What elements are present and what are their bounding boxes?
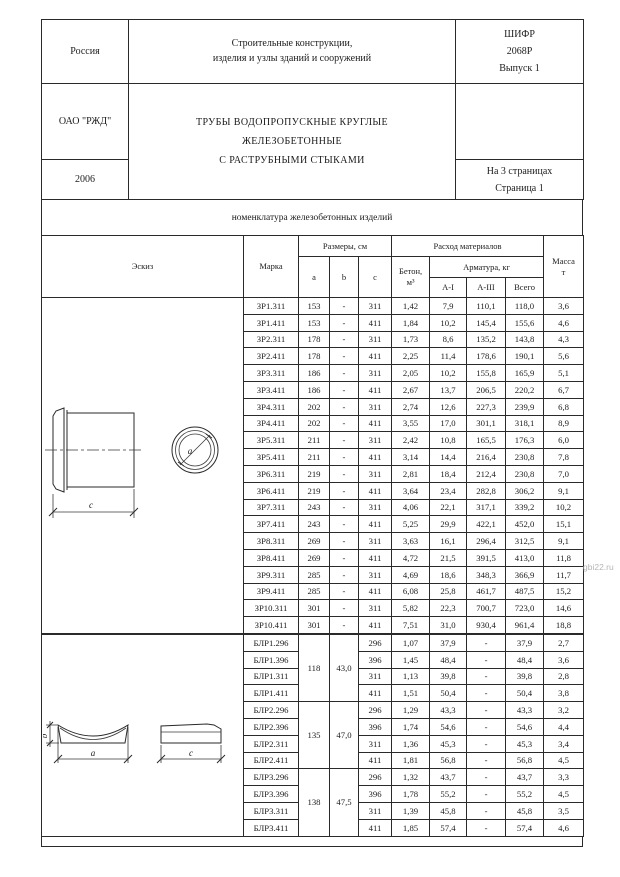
cell-c: 411 [359, 415, 392, 432]
cell-concrete: 4,06 [392, 499, 430, 516]
cell-b: - [330, 499, 359, 516]
cell-c: 296 [359, 702, 392, 719]
col-header-dimensions: Размеры, см [299, 236, 392, 257]
cell-ai: 25,8 [430, 583, 467, 600]
cell-mass: 4,5 [544, 786, 584, 803]
cell-concrete: 1,78 [392, 786, 430, 803]
cell-c: 396 [359, 786, 392, 803]
cell-ai: 22,3 [430, 600, 467, 617]
cell-b: 43,0 [330, 634, 359, 702]
cell-mass: 4,3 [544, 331, 584, 348]
col-header-rebar: Арматура, кг [430, 257, 544, 278]
cell-b: - [330, 516, 359, 533]
cell-concrete: 3,55 [392, 415, 430, 432]
cell-mark: ЗР10.311 [244, 600, 299, 617]
pipe-dim-c-label: c [89, 500, 93, 510]
cell-a: 243 [299, 516, 330, 533]
cell-mark: ЗР4.311 [244, 398, 299, 415]
cell-b: - [330, 566, 359, 583]
cell-total: 48,4 [506, 651, 544, 668]
cell-concrete: 1,51 [392, 685, 430, 702]
saddle-dim-a-label: a [90, 748, 95, 758]
cell-mark: ЗР9.311 [244, 566, 299, 583]
cell-aiii: - [467, 802, 506, 819]
cell-ai: 16,1 [430, 533, 467, 550]
cell-mark: БЛР2.411 [244, 752, 299, 769]
cell-concrete: 2,67 [392, 381, 430, 398]
cell-aiii: - [467, 786, 506, 803]
cell-c: 311 [359, 365, 392, 382]
cell-ai: 45,8 [430, 802, 467, 819]
cell-b: - [330, 432, 359, 449]
col-header-b: b [330, 257, 359, 298]
cell-aiii: 391,5 [467, 549, 506, 566]
cell-concrete: 3,14 [392, 449, 430, 466]
code-line2: 2068Р [456, 43, 583, 60]
cell-a: 186 [299, 365, 330, 382]
cell-aiii: - [467, 668, 506, 685]
cell-concrete: 1,07 [392, 634, 430, 651]
col-header-mark: Марка [244, 236, 299, 298]
cell-total: 165,9 [506, 365, 544, 382]
cell-b: - [330, 314, 359, 331]
pipe-sketch: c a [43, 400, 243, 530]
cell-mark: ЗР6.411 [244, 482, 299, 499]
cell-a: 153 [299, 298, 330, 315]
cell-aiii: 348,3 [467, 566, 506, 583]
cell-b: - [330, 398, 359, 415]
cell-total: 413,0 [506, 549, 544, 566]
cell-mark: БЛР3.396 [244, 786, 299, 803]
cell-mark: ЗР8.411 [244, 549, 299, 566]
cell-mark: БЛР2.296 [244, 702, 299, 719]
cell-mark: БЛР2.311 [244, 735, 299, 752]
cell-total: 230,8 [506, 449, 544, 466]
cell-mark: БЛР3.311 [244, 802, 299, 819]
cell-a: 135 [299, 702, 330, 769]
cell-a: 285 [299, 566, 330, 583]
cell-total: 306,2 [506, 482, 544, 499]
cell-total: 155,6 [506, 314, 544, 331]
cell-total: 118,0 [506, 298, 544, 315]
cell-mass: 15,2 [544, 583, 584, 600]
cell-mass: 4,6 [544, 819, 584, 836]
cell-concrete: 1,85 [392, 819, 430, 836]
cell-total: 176,3 [506, 432, 544, 449]
cell-b: - [330, 482, 359, 499]
cell-c: 411 [359, 482, 392, 499]
cell-concrete: 1,13 [392, 668, 430, 685]
cell-concrete: 2,81 [392, 465, 430, 482]
bottom-strip [41, 836, 583, 847]
cell-concrete: 3,63 [392, 533, 430, 550]
cell-b: - [330, 415, 359, 432]
cell-mark: БЛР2.396 [244, 718, 299, 735]
cell-c: 311 [359, 331, 392, 348]
cell-c: 411 [359, 348, 392, 365]
cell-c: 411 [359, 819, 392, 836]
cell-a: 219 [299, 482, 330, 499]
cell-aiii: 155,8 [467, 365, 506, 382]
cell-total: 39,8 [506, 668, 544, 685]
cell-mass: 14,6 [544, 600, 584, 617]
cell-total: 452,0 [506, 516, 544, 533]
cell-mass: 2,8 [544, 668, 584, 685]
cell-mark: БЛР1.411 [244, 685, 299, 702]
cell-total: 220,2 [506, 381, 544, 398]
cell-total: 45,8 [506, 802, 544, 819]
cell-a: 269 [299, 533, 330, 550]
cell-mass: 10,2 [544, 499, 584, 516]
cell-a: 178 [299, 331, 330, 348]
cell-aiii: - [467, 752, 506, 769]
cell-mark: БЛР1.396 [244, 651, 299, 668]
cell-mark: ЗР5.311 [244, 432, 299, 449]
cell-a: 153 [299, 314, 330, 331]
cell-mass: 4,5 [544, 752, 584, 769]
pipe-end-view: a [172, 427, 218, 473]
cell-a: 285 [299, 583, 330, 600]
cell-mass: 6,7 [544, 381, 584, 398]
cell-concrete: 1,36 [392, 735, 430, 752]
saddle-side-view: c [157, 724, 225, 763]
cell-aiii: - [467, 718, 506, 735]
cell-aiii: 422,1 [467, 516, 506, 533]
cell-mass: 3,2 [544, 702, 584, 719]
cell-a: 243 [299, 499, 330, 516]
cell-ai: 11,4 [430, 348, 467, 365]
org-cell: ОАО "РЖД" [42, 84, 129, 160]
document-sheet: Россия Строительные конструкции, изделия… [41, 19, 583, 847]
cell-a: 202 [299, 415, 330, 432]
cell-mass: 6,8 [544, 398, 584, 415]
section-title: номенклатура железобетонных изделий [41, 199, 583, 236]
cell-concrete: 2,25 [392, 348, 430, 365]
cell-ai: 10,8 [430, 432, 467, 449]
cell-aiii: 317,1 [467, 499, 506, 516]
cell-ai: 7,9 [430, 298, 467, 315]
cell-mark: БЛР3.411 [244, 819, 299, 836]
cell-total: 961,4 [506, 617, 544, 634]
cell-mark: ЗР3.311 [244, 365, 299, 382]
cell-concrete: 1,84 [392, 314, 430, 331]
cell-c: 411 [359, 549, 392, 566]
cell-a: 178 [299, 348, 330, 365]
cell-ai: 39,8 [430, 668, 467, 685]
cell-c: 311 [359, 398, 392, 415]
cell-aiii: - [467, 685, 506, 702]
cell-total: 55,2 [506, 786, 544, 803]
product-title-line1: ТРУБЫ ВОДОПРОПУСКНЫЕ КРУГЛЫЕ [129, 113, 455, 132]
cell-concrete: 1,42 [392, 298, 430, 315]
cell-concrete: 1,45 [392, 651, 430, 668]
cell-ai: 18,6 [430, 566, 467, 583]
col-header-concrete: Бетон, м³ [392, 257, 430, 298]
watermark: gbi22.ru [583, 562, 614, 572]
cell-mark: ЗР2.311 [244, 331, 299, 348]
cell-c: 396 [359, 651, 392, 668]
cell-ai: 8,6 [430, 331, 467, 348]
saddle-dim-b-label: b [43, 733, 49, 738]
cell-b: - [330, 381, 359, 398]
cell-aiii: 110,1 [467, 298, 506, 315]
cell-ai: 17,0 [430, 415, 467, 432]
cell-aiii: 178,6 [467, 348, 506, 365]
cell-b: - [330, 583, 359, 600]
product-title-line2: ЖЕЛЕЗОБЕТОННЫЕ [129, 132, 455, 151]
cell-ai: 48,4 [430, 651, 467, 668]
col-header-sketch: Эскиз [42, 236, 244, 298]
col-header-c: c [359, 257, 392, 298]
cell-ai: 13,7 [430, 381, 467, 398]
pipe-dim-a-label: a [187, 446, 192, 456]
cell-ai: 55,2 [430, 786, 467, 803]
cell-c: 311 [359, 600, 392, 617]
cell-mass: 9,1 [544, 533, 584, 550]
cell-total: 723,0 [506, 600, 544, 617]
code-line3: Выпуск 1 [456, 60, 583, 77]
cell-ai: 12,6 [430, 398, 467, 415]
pages-line2: Страница 1 [456, 180, 583, 197]
cell-mark: ЗР9.411 [244, 583, 299, 600]
saddle-section-view: b a [43, 721, 132, 763]
cell-mark: ЗР1.411 [244, 314, 299, 331]
cell-aiii: 282,8 [467, 482, 506, 499]
saddle-sketch-cell: b a c [42, 634, 244, 836]
col-header-total: Всего [506, 278, 544, 298]
cell-total: 312,5 [506, 533, 544, 550]
cell-mass: 3,6 [544, 651, 584, 668]
cell-concrete: 1,74 [392, 718, 430, 735]
cell-c: 311 [359, 802, 392, 819]
cell-concrete: 1,81 [392, 752, 430, 769]
cell-total: 366,9 [506, 566, 544, 583]
cell-concrete: 1,39 [392, 802, 430, 819]
cell-ai: 29,9 [430, 516, 467, 533]
cell-b: 47,5 [330, 769, 359, 836]
table-row: b a c БЛР1.29611843,02961,0737,9-37,92,7 [42, 634, 584, 651]
cell-aiii: - [467, 651, 506, 668]
cell-mark: ЗР3.411 [244, 381, 299, 398]
cell-aiii: - [467, 769, 506, 786]
cell-ai: 10,2 [430, 314, 467, 331]
cell-c: 311 [359, 566, 392, 583]
cell-ai: 23,4 [430, 482, 467, 499]
product-title-line3: С РАСТРУБНЫМИ СТЫКАМИ [129, 151, 455, 170]
cell-ai: 10,2 [430, 365, 467, 382]
year-cell: 2006 [42, 160, 129, 200]
cell-ai: 21,5 [430, 549, 467, 566]
cell-concrete: 1,73 [392, 331, 430, 348]
cell-mass: 18,8 [544, 617, 584, 634]
cell-concrete: 2,42 [392, 432, 430, 449]
cell-ai: 18,4 [430, 465, 467, 482]
cell-concrete: 7,51 [392, 617, 430, 634]
pages-line1: На 3 страницах [456, 163, 583, 180]
cell-total: 239,9 [506, 398, 544, 415]
cell-c: 411 [359, 381, 392, 398]
cell-mark: ЗР4.411 [244, 415, 299, 432]
cell-mark: ЗР2.411 [244, 348, 299, 365]
cell-c: 396 [359, 718, 392, 735]
cell-b: - [330, 533, 359, 550]
cell-a: 211 [299, 432, 330, 449]
cell-mass: 7,8 [544, 449, 584, 466]
pages-cell: На 3 страницах Страница 1 [456, 160, 584, 200]
cell-b: - [330, 617, 359, 634]
cell-a: 301 [299, 617, 330, 634]
cell-c: 411 [359, 314, 392, 331]
cell-mass: 3,3 [544, 769, 584, 786]
cell-concrete: 1,32 [392, 769, 430, 786]
cell-concrete: 5,82 [392, 600, 430, 617]
cell-concrete: 4,72 [392, 549, 430, 566]
cell-b: - [330, 365, 359, 382]
cell-a: 219 [299, 465, 330, 482]
mass-label-line2: т [544, 267, 583, 278]
cell-c: 311 [359, 533, 392, 550]
cell-mark: ЗР6.311 [244, 465, 299, 482]
cell-total: 43,3 [506, 702, 544, 719]
cell-mass: 5,6 [544, 348, 584, 365]
cell-total: 43,7 [506, 769, 544, 786]
cell-aiii: - [467, 819, 506, 836]
cell-concrete: 5,25 [392, 516, 430, 533]
cell-total: 143,8 [506, 331, 544, 348]
saddle-dim-c-label: c [189, 748, 193, 758]
series-title-cell: Строительные конструкции, изделия и узлы… [129, 20, 456, 84]
cell-b: - [330, 600, 359, 617]
cell-mass: 11,8 [544, 549, 584, 566]
cell-c: 411 [359, 449, 392, 466]
cell-c: 296 [359, 634, 392, 651]
cell-concrete: 4,69 [392, 566, 430, 583]
cell-mark: БЛР3.296 [244, 769, 299, 786]
cell-total: 37,9 [506, 634, 544, 651]
cell-mark: ЗР7.411 [244, 516, 299, 533]
cell-c: 311 [359, 668, 392, 685]
concrete-label-line1: Бетон, [392, 266, 429, 277]
empty-cell [456, 84, 584, 160]
cell-aiii: 216,4 [467, 449, 506, 466]
cell-mass: 3,5 [544, 802, 584, 819]
cell-total: 487,5 [506, 583, 544, 600]
cell-aiii: 135,2 [467, 331, 506, 348]
cell-concrete: 6,08 [392, 583, 430, 600]
pipe-side-view: c [45, 408, 141, 518]
cell-mark: БЛР1.296 [244, 634, 299, 651]
cell-mass: 3,4 [544, 735, 584, 752]
cell-mass: 6,0 [544, 432, 584, 449]
cell-mark: ЗР10.411 [244, 617, 299, 634]
cell-c: 311 [359, 298, 392, 315]
cell-concrete: 3,64 [392, 482, 430, 499]
cell-c: 411 [359, 583, 392, 600]
col-header-aiii: А-III [467, 278, 506, 298]
cell-c: 411 [359, 752, 392, 769]
cell-mass: 11,7 [544, 566, 584, 583]
cell-a: 138 [299, 769, 330, 836]
cell-total: 54,6 [506, 718, 544, 735]
cell-a: 211 [299, 449, 330, 466]
cell-ai: 14,4 [430, 449, 467, 466]
cell-aiii: 212,4 [467, 465, 506, 482]
series-title-line1: Строительные конструкции, [129, 37, 455, 52]
cell-b: - [330, 549, 359, 566]
main-table-body: c a ЗР1.311153-3111,427,9110,1118,03,6ЗР… [42, 298, 584, 837]
nomenclature-table: Эскиз Марка Размеры, см Расход материало… [41, 235, 584, 837]
series-title-line2: изделия и узлы зданий и сооружений [129, 52, 455, 67]
cell-b: - [330, 465, 359, 482]
cell-mass: 8,9 [544, 415, 584, 432]
cell-b: - [330, 298, 359, 315]
cell-b: - [330, 348, 359, 365]
cell-ai: 43,3 [430, 702, 467, 719]
cell-c: 311 [359, 432, 392, 449]
cell-c: 411 [359, 516, 392, 533]
cell-mass: 3,8 [544, 685, 584, 702]
cell-concrete: 2,74 [392, 398, 430, 415]
cell-c: 311 [359, 735, 392, 752]
code-line1: ШИФР [456, 26, 583, 43]
cell-b: 47,0 [330, 702, 359, 769]
mass-label-line1: Масса [544, 256, 583, 267]
cell-aiii: - [467, 735, 506, 752]
cell-mass: 15,1 [544, 516, 584, 533]
cell-mark: ЗР5.411 [244, 449, 299, 466]
cell-aiii: - [467, 702, 506, 719]
cell-ai: 54,6 [430, 718, 467, 735]
cell-ai: 43,7 [430, 769, 467, 786]
saddle-sketch: b a c [43, 697, 243, 773]
cell-ai: 56,8 [430, 752, 467, 769]
country-cell: Россия [42, 20, 129, 84]
cell-c: 411 [359, 685, 392, 702]
pipe-sketch-cell: c a [42, 298, 244, 634]
cell-ai: 22,1 [430, 499, 467, 516]
cell-mass: 2,7 [544, 634, 584, 651]
cell-aiii: 301,1 [467, 415, 506, 432]
cell-concrete: 1,29 [392, 702, 430, 719]
title-block: Россия Строительные конструкции, изделия… [41, 19, 584, 200]
cell-aiii: 227,3 [467, 398, 506, 415]
table-header: Эскиз Марка Размеры, см Расход материало… [42, 236, 584, 298]
code-cell: ШИФР 2068Р Выпуск 1 [456, 20, 584, 84]
cell-total: 57,4 [506, 819, 544, 836]
cell-aiii: 461,7 [467, 583, 506, 600]
cell-c: 296 [359, 769, 392, 786]
col-header-ai: А-I [430, 278, 467, 298]
table-row: c a ЗР1.311153-3111,427,9110,1118,03,6 [42, 298, 584, 315]
cell-concrete: 2,05 [392, 365, 430, 382]
cell-mass: 5,1 [544, 365, 584, 382]
cell-aiii: 930,4 [467, 617, 506, 634]
cell-ai: 50,4 [430, 685, 467, 702]
cell-total: 230,8 [506, 465, 544, 482]
concrete-label-line2: м³ [392, 277, 429, 288]
cell-a: 301 [299, 600, 330, 617]
cell-a: 118 [299, 634, 330, 702]
cell-mass: 7,0 [544, 465, 584, 482]
cell-total: 50,4 [506, 685, 544, 702]
col-header-mass: Масса т [544, 236, 584, 298]
cell-aiii: 700,7 [467, 600, 506, 617]
cell-total: 318,1 [506, 415, 544, 432]
cell-c: 311 [359, 465, 392, 482]
cell-aiii: 145,4 [467, 314, 506, 331]
cell-total: 339,2 [506, 499, 544, 516]
cell-mark: ЗР1.311 [244, 298, 299, 315]
